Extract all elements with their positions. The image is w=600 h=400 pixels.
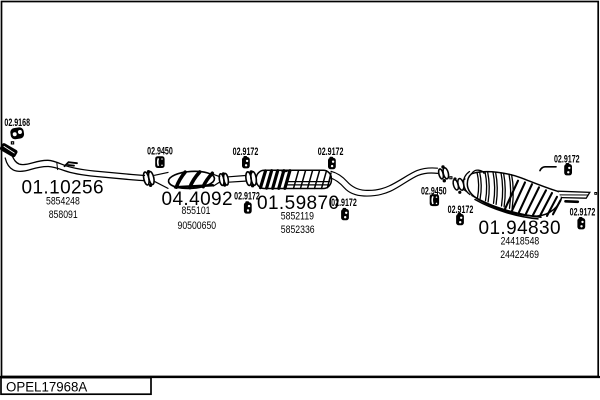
svg-text:5852119: 5852119	[281, 211, 315, 223]
svg-text:5854248: 5854248	[46, 195, 80, 207]
svg-text:855101: 855101	[182, 205, 211, 217]
svg-text:02.9168: 02.9168	[4, 116, 30, 128]
svg-text:02.9172: 02.9172	[570, 206, 596, 218]
svg-text:24418548: 24418548	[501, 236, 540, 248]
svg-text:02.9172: 02.9172	[234, 190, 260, 202]
svg-text:02.9450: 02.9450	[147, 145, 173, 157]
svg-text:02.9172: 02.9172	[331, 196, 357, 208]
svg-text:02.9172: 02.9172	[233, 146, 259, 158]
svg-text:858091: 858091	[49, 209, 78, 221]
svg-text:90500650: 90500650	[177, 220, 216, 232]
svg-text:02.9172: 02.9172	[318, 145, 344, 157]
svg-text:02.9172: 02.9172	[554, 153, 580, 165]
svg-text:5852336: 5852336	[281, 224, 315, 236]
svg-text:OPEL17968A: OPEL17968A	[6, 379, 88, 394]
svg-text:24422469: 24422469	[500, 249, 539, 261]
